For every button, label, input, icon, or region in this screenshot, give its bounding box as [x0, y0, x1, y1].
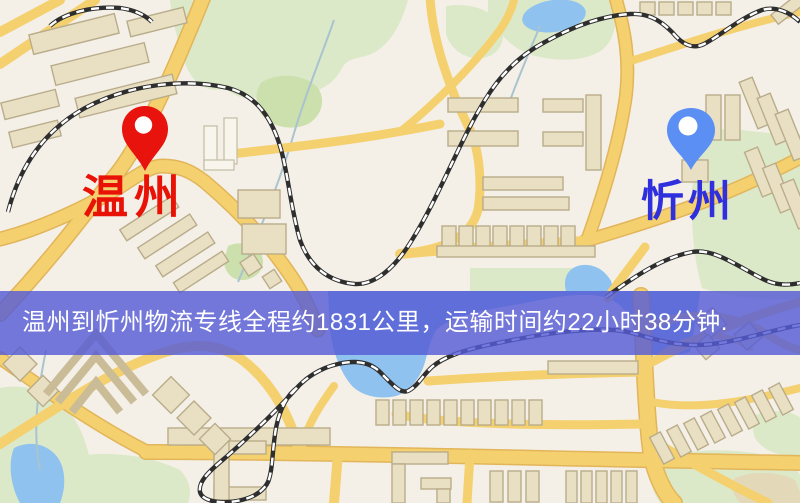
destination-label: 忻州: [641, 181, 735, 224]
pin-hole: [135, 116, 152, 133]
pin-hole: [679, 117, 698, 136]
map-screenshot: 温州到忻州物流专线全程约1831公里，运输时间约22小时38分钟. 温州 忻州: [0, 0, 800, 503]
origin-pin: [119, 103, 171, 173]
route-info-banner: 温州到忻州物流专线全程约1831公里，运输时间约22小时38分钟.: [0, 291, 800, 355]
map-canvas: [0, 0, 800, 503]
red-map-pin-icon: [122, 106, 168, 171]
origin-label: 温州: [82, 175, 186, 221]
destination-pin: [664, 106, 718, 172]
route-info-text: 温州到忻州物流专线全程约1831公里，运输时间约22小时38分钟.: [22, 291, 728, 355]
